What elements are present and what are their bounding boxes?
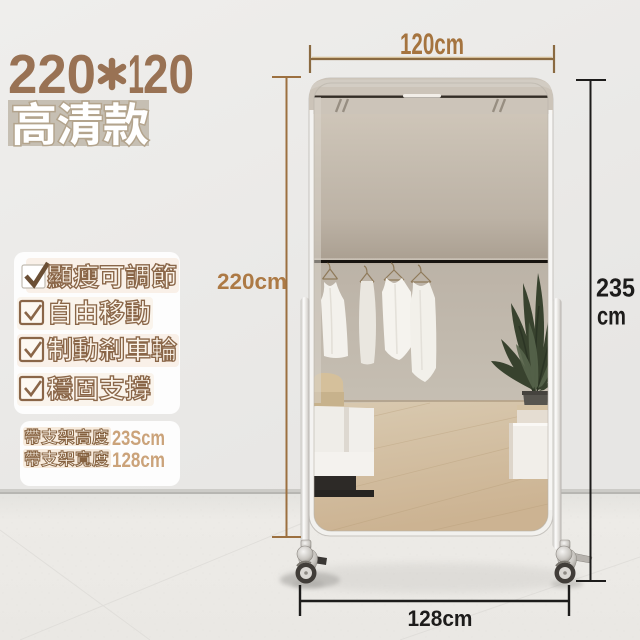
svg-text:cm: cm: [597, 301, 626, 331]
svg-text:235: 235: [596, 273, 635, 303]
svg-text:220: 220: [8, 43, 96, 105]
svg-text:23Scm: 23Scm: [112, 427, 165, 450]
svg-text:128cm: 128cm: [408, 606, 473, 631]
svg-text:20: 20: [143, 43, 194, 105]
svg-text:128cm: 128cm: [112, 449, 165, 472]
svg-text:120cm: 120cm: [400, 28, 464, 61]
svg-text:220cm: 220cm: [217, 269, 287, 294]
svg-text:1: 1: [128, 43, 144, 105]
